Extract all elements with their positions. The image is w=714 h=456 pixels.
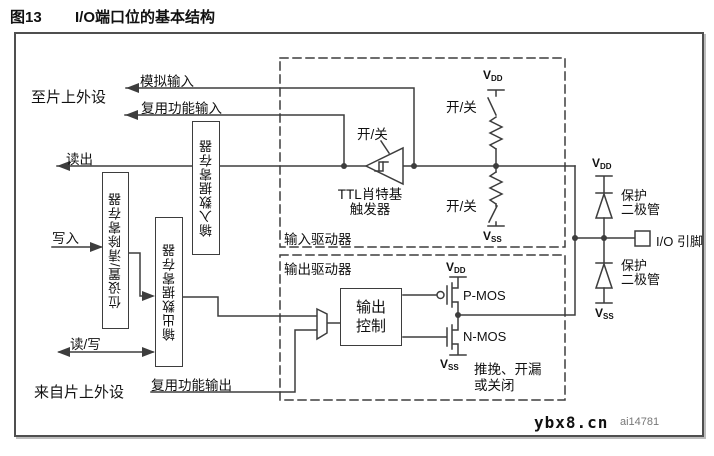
io-pin-pad [635, 231, 650, 246]
read-label: 读出 [66, 148, 93, 168]
output-control-label-line1: 输出 [356, 298, 386, 317]
bit-set-clear-register-label: 位设置/清除寄存器 [106, 192, 125, 309]
on-off-schmitt-label: 开/关 [357, 123, 388, 143]
output-data-register-label: 输出数据寄存器 [160, 243, 179, 341]
nmos-label: N-MOS [463, 329, 506, 344]
input-driver-dashed-box [280, 58, 565, 247]
figure-page: 图13 I/O端口位的基本结构 [0, 0, 714, 456]
write-label: 写入 [52, 227, 79, 247]
output-register-to-mux-wire [182, 297, 317, 316]
vdd-diode-label: VDD [592, 156, 612, 171]
pullup-switch-resistor [488, 90, 504, 166]
schmitt-trigger-symbol [366, 141, 403, 184]
vss-diode-label: VSS [595, 306, 614, 321]
input-driver-label: 输入驱动器 [284, 228, 352, 248]
watermark-text: ybx8.cn [534, 413, 608, 432]
read-write-label: 读/写 [70, 333, 101, 353]
output-data-register-box: 输出数据寄存器 [155, 217, 183, 367]
vss-pull-label: VSS [483, 229, 502, 244]
figure-id-text: ai14781 [620, 416, 659, 428]
input-data-register-label: 输入数据寄存器 [197, 139, 216, 237]
alternate-function-input-label: 复用功能输入 [141, 97, 222, 117]
to-onchip-peripheral-label: 至片上外设 [31, 86, 106, 107]
schmitt-trigger-label: TTL肖特基 触发器 [328, 187, 412, 217]
analog-input-label: 模拟输入 [140, 70, 194, 90]
vss-nmos-label: VSS [440, 357, 459, 372]
output-control-box: 输出 控制 [340, 288, 402, 346]
mux-symbol [317, 309, 327, 339]
bit-set-clear-register-box: 位设置/清除寄存器 [102, 172, 129, 329]
from-onchip-peripheral-label: 来自片上外设 [34, 381, 124, 402]
vdd-pull-label: VDD [483, 68, 503, 83]
io-pin-label: I/O 引脚 [656, 231, 703, 250]
protection-diode-upper-label: 保护 二极管 [621, 189, 660, 217]
vdd-pmos-label: VDD [446, 260, 466, 275]
pmos-symbol [403, 277, 466, 315]
input-data-register-box: 输入数据寄存器 [192, 121, 220, 255]
alternate-function-input-wire [125, 115, 344, 166]
output-mode-label: 推挽、开漏 或关闭 [474, 362, 542, 394]
alternate-function-output-label: 复用功能输出 [151, 374, 232, 394]
output-control-label-line2: 控制 [356, 317, 386, 336]
register-link-wire [128, 253, 152, 296]
output-driver-label: 输出驱动器 [284, 258, 352, 278]
on-off-pullup-label: 开/关 [446, 96, 477, 116]
on-off-pulldown-label: 开/关 [446, 195, 477, 215]
pulldown-resistor-switch [488, 166, 504, 226]
protection-diode-lower-label: 保护 二极管 [621, 259, 660, 287]
nmos-symbol [403, 315, 466, 355]
pmos-label: P-MOS [463, 288, 506, 303]
